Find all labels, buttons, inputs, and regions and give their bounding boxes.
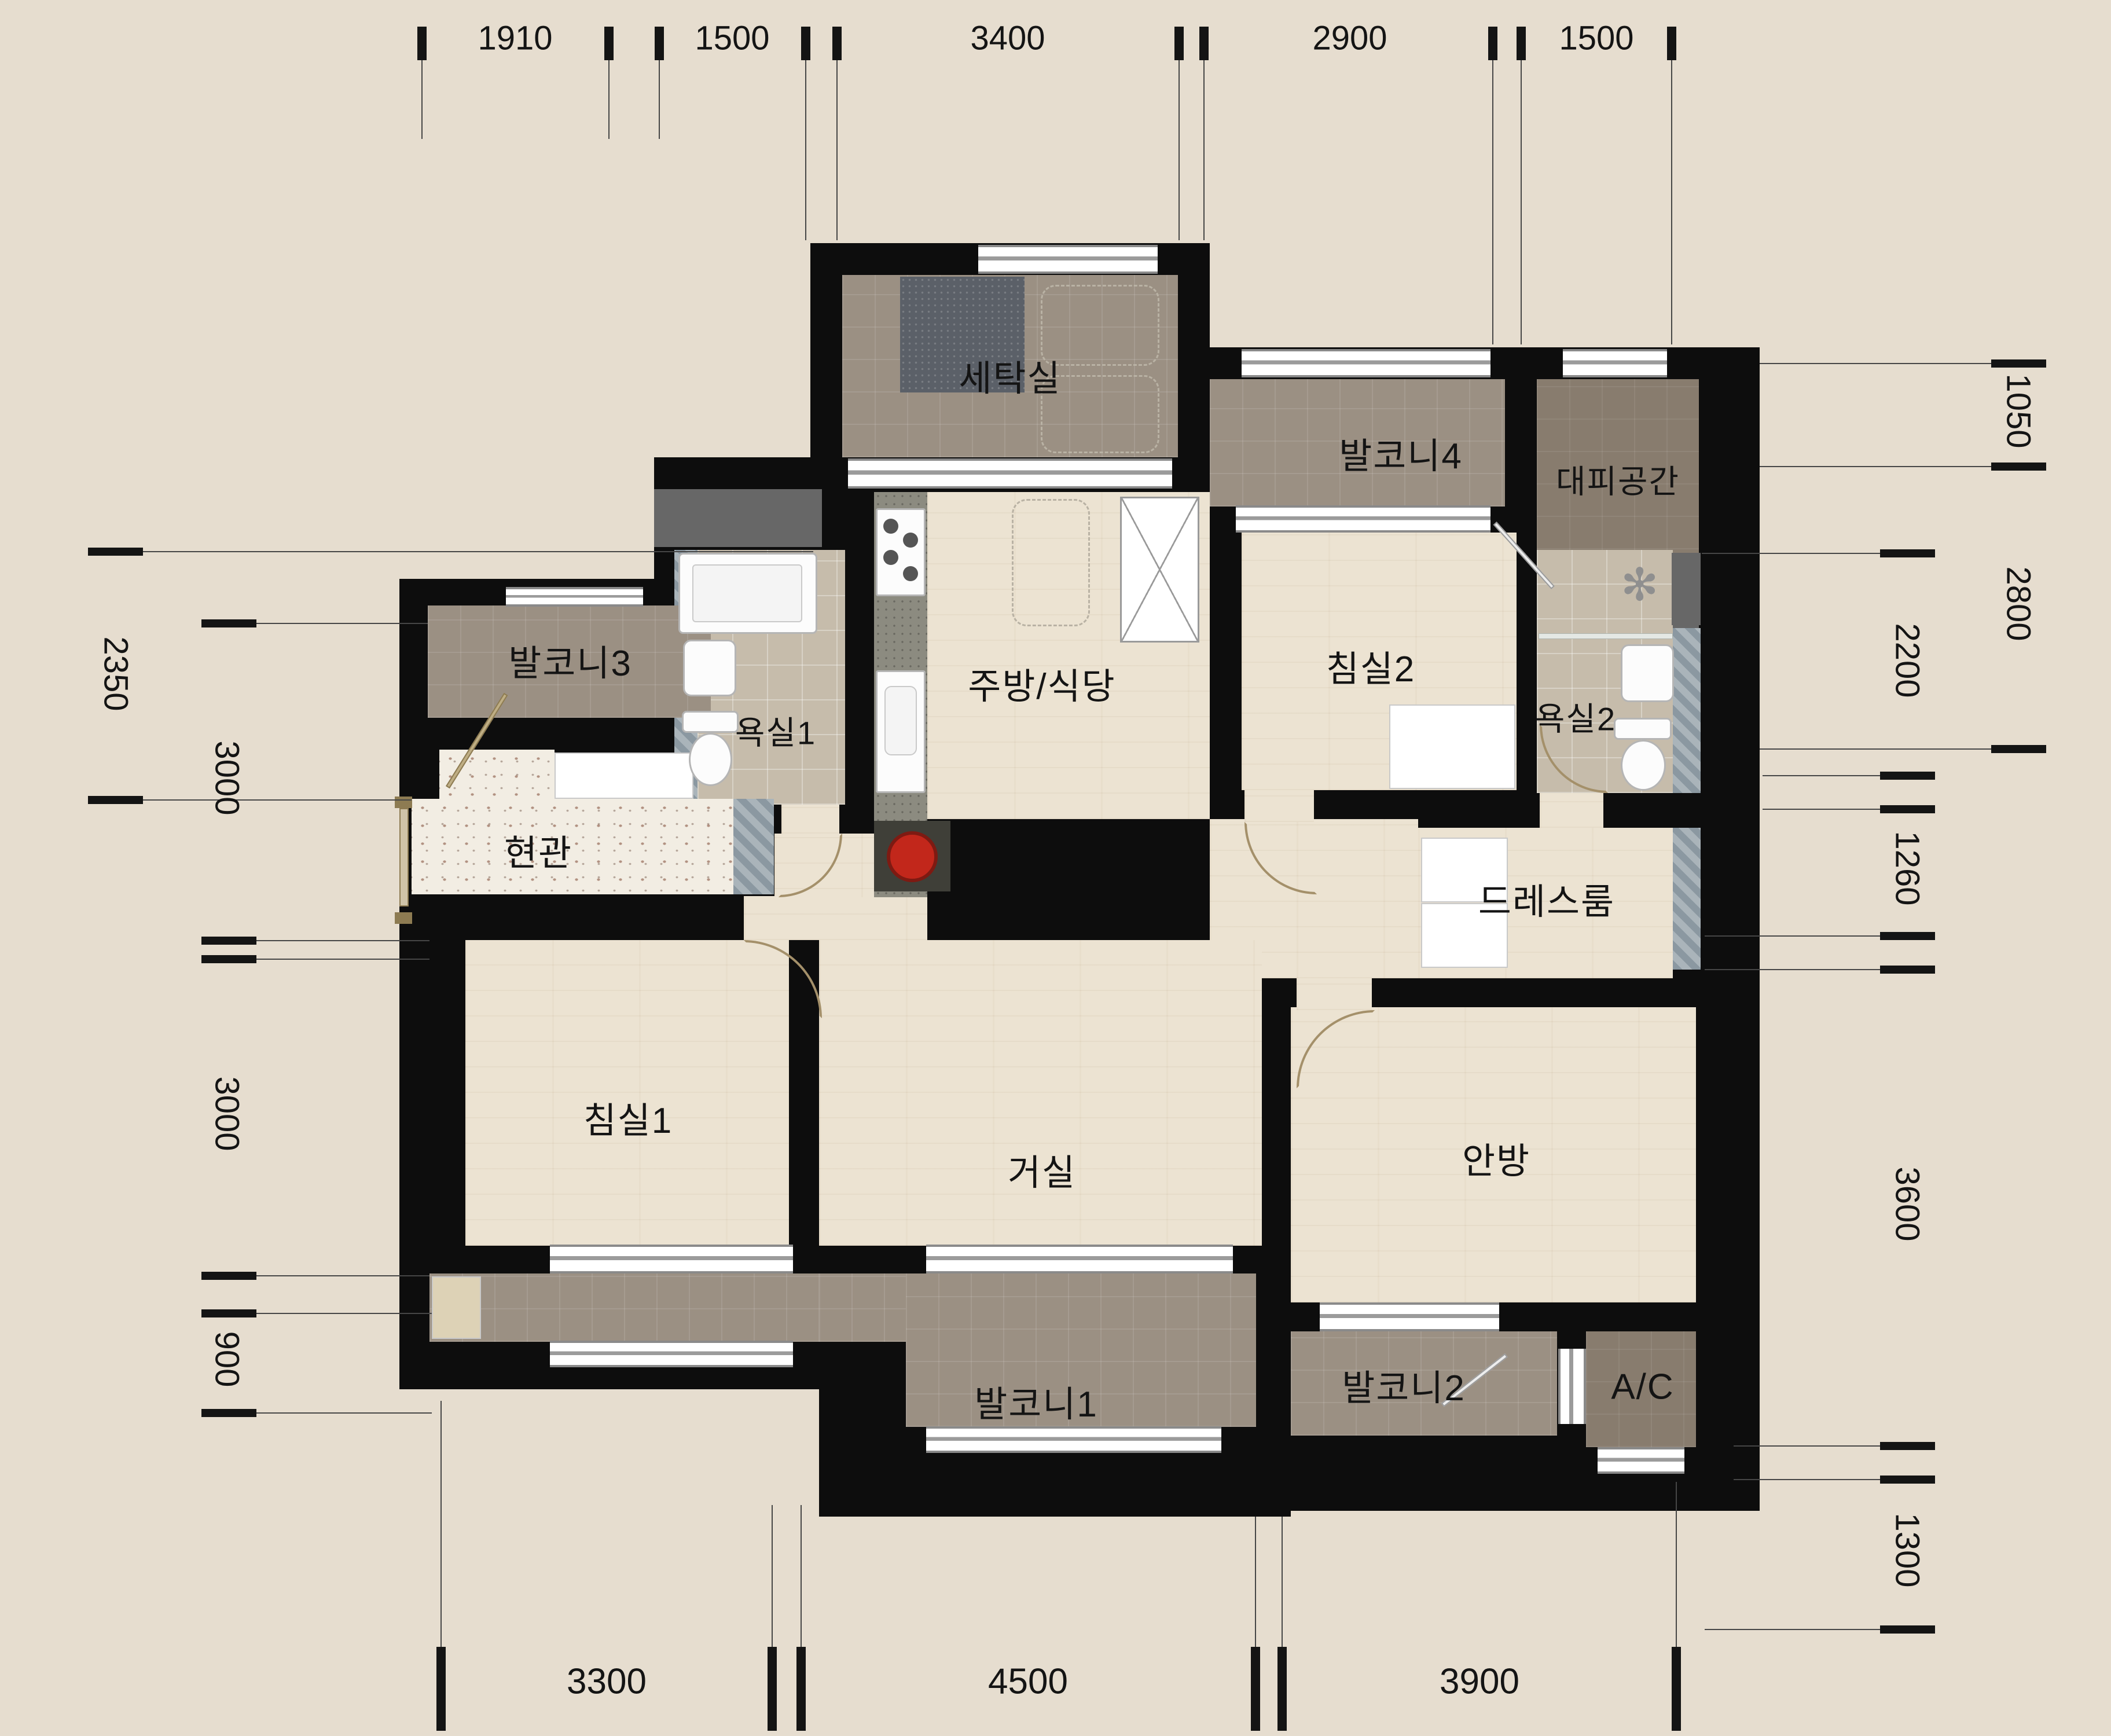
window-balcony3-top: [506, 587, 643, 607]
mosaic-bath2-edge: [1673, 628, 1701, 793]
bath1-toilet-bowl: [689, 733, 732, 786]
dim-label-right-3600: 3600: [1888, 1166, 1927, 1241]
dim-tick: [1991, 359, 2046, 368]
entry-door-leaf: [399, 808, 409, 906]
floor-balcony1-left: [429, 1273, 867, 1342]
entry-door-jamb-bottom: [395, 912, 412, 924]
dim-label-bottom-3900: 3900: [1440, 1661, 1519, 1702]
room-label-dressroom: 드레스룸: [1478, 872, 1615, 924]
dim-tick: [604, 27, 614, 60]
window-bedroom1-balcony1: [550, 1245, 793, 1273]
burner-icon: [903, 566, 918, 581]
dim-tick: [1251, 1647, 1260, 1731]
door-opening-bedroom2: [1244, 790, 1314, 822]
dim-ext-line: [421, 60, 423, 139]
duct-bath1: [654, 489, 822, 547]
cooktop: [876, 508, 926, 596]
room-label-bedroom1: 침실1: [583, 1091, 673, 1143]
dim-ext-line: [1179, 60, 1180, 240]
dim-tick: [201, 619, 256, 627]
dim-ext-line: [1760, 363, 1991, 364]
dim-ext-line: [256, 1313, 432, 1314]
dim-ext-line: [1705, 1629, 1880, 1630]
room-label-balcony4: 발코니4: [1339, 427, 1463, 479]
room-label-bedroom2: 침실2: [1326, 640, 1416, 692]
dim-tick: [201, 1309, 256, 1317]
dim-ext-line: [256, 1275, 429, 1276]
dim-tick: [768, 1647, 777, 1731]
dim-ext-line: [659, 60, 660, 139]
dim-label-left-3000b: 3000: [208, 1076, 247, 1151]
window-ac-outer: [1598, 1447, 1684, 1474]
dim-tick: [1880, 932, 1935, 940]
dim-ext-line: [608, 60, 610, 139]
dim-ext-line: [1734, 1479, 1880, 1480]
dim-tick: [1880, 805, 1935, 813]
dim-ext-line: [1702, 553, 1880, 554]
dim-tick: [1880, 549, 1935, 557]
dim-tick: [1880, 1476, 1935, 1484]
burner-icon: [883, 550, 898, 565]
bath1-sink: [683, 640, 736, 696]
dim-ext-line: [143, 551, 813, 552]
window-shelter-top: [1563, 349, 1667, 377]
dim-ext-line: [1255, 1517, 1256, 1647]
door-opening-bath2: [1540, 793, 1603, 828]
room-label-master: 안방: [1462, 1132, 1530, 1184]
room-label-balcony2: 발코니2: [1342, 1359, 1466, 1411]
door-opening-bath1: [781, 805, 839, 834]
dim-ext-line: [1705, 935, 1880, 937]
dim-ext-line: [1203, 60, 1205, 240]
dim-tick: [417, 27, 427, 60]
dim-tick: [1488, 27, 1497, 60]
dim-tick: [88, 548, 143, 556]
dim-ext-line: [256, 940, 429, 941]
dim-ext-line: [836, 60, 838, 240]
room-label-entrance: 현관: [504, 824, 572, 876]
window-balcony4-bedroom2: [1236, 505, 1490, 533]
dim-tick: [201, 955, 256, 963]
dim-tick: [88, 796, 143, 804]
dim-ext-line: [801, 1505, 802, 1647]
bath2-shower-glass: [1539, 633, 1673, 639]
dim-ext-line: [256, 959, 429, 960]
dim-ext-line: [1734, 1445, 1880, 1447]
dim-tick: [655, 27, 664, 60]
dim-ext-line: [256, 1412, 432, 1414]
dim-label-right-1260: 1260: [1888, 831, 1927, 905]
dim-tick: [1672, 1647, 1681, 1731]
window-balcony1-outer-center: [926, 1426, 1221, 1453]
dim-ext-line: [143, 799, 412, 801]
burner-icon: [883, 519, 898, 534]
entry-door-jamb-top: [395, 797, 412, 808]
dim-tick: [1517, 27, 1526, 60]
room-label-ac: A/C: [1611, 1367, 1674, 1408]
door-opening-bedroom1: [744, 896, 822, 940]
room-label-bath1: 욕실1: [735, 707, 816, 754]
dim-tick: [436, 1647, 446, 1731]
dim-label-top-3400: 3400: [970, 19, 1045, 58]
dim-label-bottom-4500: 4500: [988, 1661, 1068, 1702]
shower-head-icon: ✻: [1621, 559, 1658, 611]
floor-corridor-east: [819, 897, 927, 940]
bath2-toilet-tank: [1614, 718, 1672, 740]
window-master-balcony2: [1320, 1302, 1499, 1331]
dim-tick: [801, 27, 810, 60]
window-balcony1-outer-left: [550, 1341, 793, 1367]
window-balcony4-top: [1242, 349, 1490, 377]
dim-label-top-2900: 2900: [1312, 19, 1387, 58]
bathtub-basin: [692, 564, 802, 622]
door-opening-master: [1297, 978, 1372, 1010]
dim-ext-line: [1705, 969, 1880, 970]
dim-ext-line: [1676, 1482, 1677, 1647]
dining-table-outline: [1012, 499, 1090, 626]
stove-red-burner: [887, 831, 938, 882]
dim-ext-line: [440, 1401, 442, 1647]
refrigerator-space: [1120, 497, 1199, 643]
entrance-shoe-cabinet: [555, 753, 693, 799]
door-opening-balcony2-ac: [1558, 1349, 1586, 1424]
dim-label-left-3000a: 3000: [208, 740, 247, 815]
bath2-sink: [1621, 644, 1674, 702]
window-laundry-kitchen: [848, 458, 1172, 489]
dim-label-bottom-3300: 3300: [567, 1661, 647, 1702]
dim-ext-line: [772, 1505, 773, 1647]
balcony1-cabinet: [432, 1276, 481, 1339]
kitchen-sink-basin: [884, 686, 917, 755]
dim-ext-line: [1763, 775, 1880, 776]
dim-ext-line: [1671, 60, 1672, 344]
dim-tick: [201, 937, 256, 945]
floor-living: [819, 940, 1262, 1246]
dim-ext-line: [1763, 809, 1880, 810]
dim-label-right-2200: 2200: [1888, 623, 1927, 698]
dim-label-top-1500b: 1500: [1559, 19, 1633, 58]
bath1-toilet-tank: [682, 711, 739, 733]
dim-ext-line: [1760, 466, 1991, 467]
dim-tick: [1880, 1442, 1935, 1450]
window-living-balcony1: [926, 1245, 1233, 1273]
room-label-bath2: 욕실2: [1535, 693, 1616, 740]
dim-ext-line: [805, 60, 806, 240]
dim-tick: [1667, 27, 1676, 60]
room-label-laundry: 세탁실: [959, 349, 1061, 401]
floor-plan: ✻ 세탁실 발코니4 대피공간 발코니3 욕실1 주방/식당 침실2 욕실2 현…: [0, 0, 2111, 1736]
dim-tick: [1880, 772, 1935, 780]
dim-label-right-2800: 2800: [1999, 566, 2038, 641]
dim-label-left-900: 900: [208, 1331, 247, 1388]
dim-tick: [1991, 463, 2046, 471]
dim-label-left-2350: 2350: [97, 636, 135, 711]
bath2-toilet-bowl: [1621, 740, 1666, 791]
duct-bath2: [1672, 553, 1701, 625]
dim-tick: [1199, 27, 1209, 60]
dim-ext-line: [256, 623, 428, 624]
room-label-shelter: 대피공간: [1556, 456, 1680, 503]
dim-label-right-1050: 1050: [1999, 373, 2038, 448]
room-label-balcony3: 발코니3: [508, 634, 632, 686]
dim-ext-line: [1282, 1517, 1283, 1647]
dim-ext-line: [1521, 60, 1522, 344]
bedroom2-closet: [1389, 704, 1515, 789]
dim-tick: [1880, 1625, 1935, 1634]
dim-tick: [796, 1647, 806, 1731]
room-label-balcony1: 발코니1: [974, 1375, 1098, 1427]
dim-label-top-1910: 1910: [478, 19, 552, 58]
room-label-living: 거실: [1008, 1143, 1076, 1195]
dim-ext-line: [1492, 60, 1493, 344]
dim-tick: [201, 1272, 256, 1280]
dim-tick: [1880, 966, 1935, 974]
dim-label-top-1500a: 1500: [695, 19, 769, 58]
mosaic-dressroom-edge: [1673, 828, 1701, 970]
dim-tick: [1174, 27, 1184, 60]
room-label-kitchen: 주방/식당: [968, 657, 1115, 709]
mosaic-entrance-edge: [733, 799, 774, 894]
dim-tick: [1991, 745, 2046, 753]
burner-icon: [903, 533, 918, 548]
dim-label-right-1300: 1300: [1888, 1513, 1927, 1587]
floor-balcony1-step: [819, 1273, 906, 1342]
dim-tick: [201, 1409, 256, 1417]
dim-tick: [832, 27, 842, 60]
window-laundry-top: [978, 245, 1158, 274]
dim-ext-line: [1760, 748, 1991, 750]
dim-tick: [1277, 1647, 1287, 1731]
